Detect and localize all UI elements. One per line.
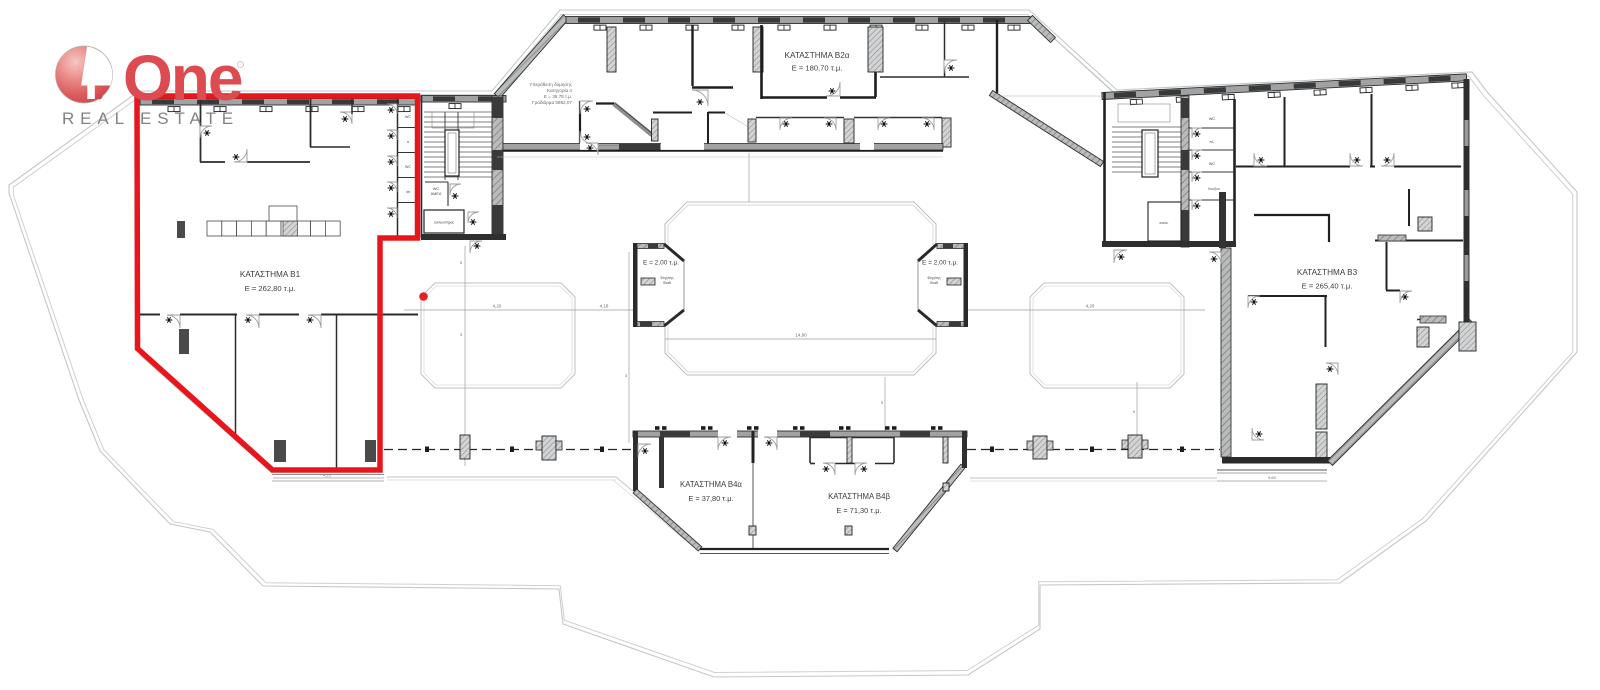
svg-text:Ε = 2,00 τ.μ.: Ε = 2,00 τ.μ. bbox=[922, 260, 958, 267]
svg-text:One: One bbox=[123, 42, 242, 114]
svg-text:3: 3 bbox=[625, 373, 628, 378]
svg-text:Ε = 36,78 τ.μ.: Ε = 36,78 τ.μ. bbox=[544, 94, 572, 99]
svg-text:ΚΑΤΑΣΤΗΜΑ Β1: ΚΑΤΑΣΤΗΜΑ Β1 bbox=[240, 270, 301, 279]
svg-text:ΚΑΤΑΣΤΗΜΑ Β4β: ΚΑΤΑΣΤΗΜΑ Β4β bbox=[828, 492, 890, 501]
svg-text:ΑΜΕΑ: ΑΜΕΑ bbox=[431, 192, 442, 196]
svg-text:ΚΑΤΑΣΤΗΜΑ Β4α: ΚΑΤΑΣΤΗΜΑ Β4α bbox=[680, 480, 742, 489]
svg-text:5: 5 bbox=[1133, 409, 1136, 414]
svg-text:ανελκ.: ανελκ. bbox=[1160, 221, 1169, 225]
svg-text:9,60: 9,60 bbox=[1268, 475, 1277, 480]
svg-text:Ε = 71,30 τ.μ.: Ε = 71,30 τ.μ. bbox=[836, 506, 881, 515]
svg-text:REAL ESTATE: REAL ESTATE bbox=[62, 109, 239, 128]
svg-text:4,20: 4,20 bbox=[1086, 304, 1095, 309]
svg-text:ανελκυστήρας: ανελκυστήρας bbox=[434, 221, 454, 225]
svg-text:4,20: 4,20 bbox=[493, 304, 502, 309]
svg-text:WC: WC bbox=[405, 115, 411, 119]
svg-text:WC: WC bbox=[1209, 162, 1216, 166]
svg-text:14,90: 14,90 bbox=[795, 333, 807, 338]
svg-text:WC: WC bbox=[433, 187, 440, 191]
svg-text:3: 3 bbox=[460, 332, 463, 337]
svg-text:Ε = 2,00 τ.μ.: Ε = 2,00 τ.μ. bbox=[643, 260, 679, 267]
svg-text:5: 5 bbox=[881, 400, 884, 405]
svg-text:Γραδιάρμα 5982,07: Γραδιάρμα 5982,07 bbox=[532, 99, 572, 105]
svg-text:Υπεράθεση δόμησης: Υπεράθεση δόμησης bbox=[529, 81, 573, 87]
svg-text:Ε = 265,40 τ.μ.: Ε = 265,40 τ.μ. bbox=[1302, 282, 1353, 291]
svg-text:Φεγγίτης: Φεγγίτης bbox=[927, 276, 941, 280]
svg-text:απ: απ bbox=[406, 190, 411, 194]
svg-text:ΚΑΤΑΣΤΗΜΑ Β2α: ΚΑΤΑΣΤΗΜΑ Β2α bbox=[785, 51, 850, 60]
svg-text:4,18: 4,18 bbox=[600, 304, 609, 309]
svg-text:Κουζίνα: Κουζίνα bbox=[1208, 187, 1219, 191]
svg-text:Ε = 262,80 τ.μ.: Ε = 262,80 τ.μ. bbox=[245, 284, 296, 293]
svg-text:Ε = 180,70 τ.μ.: Ε = 180,70 τ.μ. bbox=[792, 64, 843, 73]
svg-text:WC: WC bbox=[405, 165, 411, 169]
svg-text:π: π bbox=[407, 140, 410, 144]
svg-text:πλ.: πλ. bbox=[1209, 140, 1214, 144]
svg-text:WC: WC bbox=[1209, 117, 1216, 121]
svg-text:Ε = 37,80 τ.μ.: Ε = 37,80 τ.μ. bbox=[688, 494, 733, 503]
svg-text:Κατηγορία 4: Κατηγορία 4 bbox=[547, 88, 572, 93]
svg-text:ΚΑΤΑΣΤΗΜΑ Β3: ΚΑΤΑΣΤΗΜΑ Β3 bbox=[1297, 268, 1358, 277]
svg-text:Φεγγίτης: Φεγγίτης bbox=[660, 276, 674, 280]
svg-text:Shaft: Shaft bbox=[663, 281, 671, 285]
svg-text:Shaft: Shaft bbox=[930, 281, 938, 285]
svg-text:5: 5 bbox=[460, 260, 463, 265]
